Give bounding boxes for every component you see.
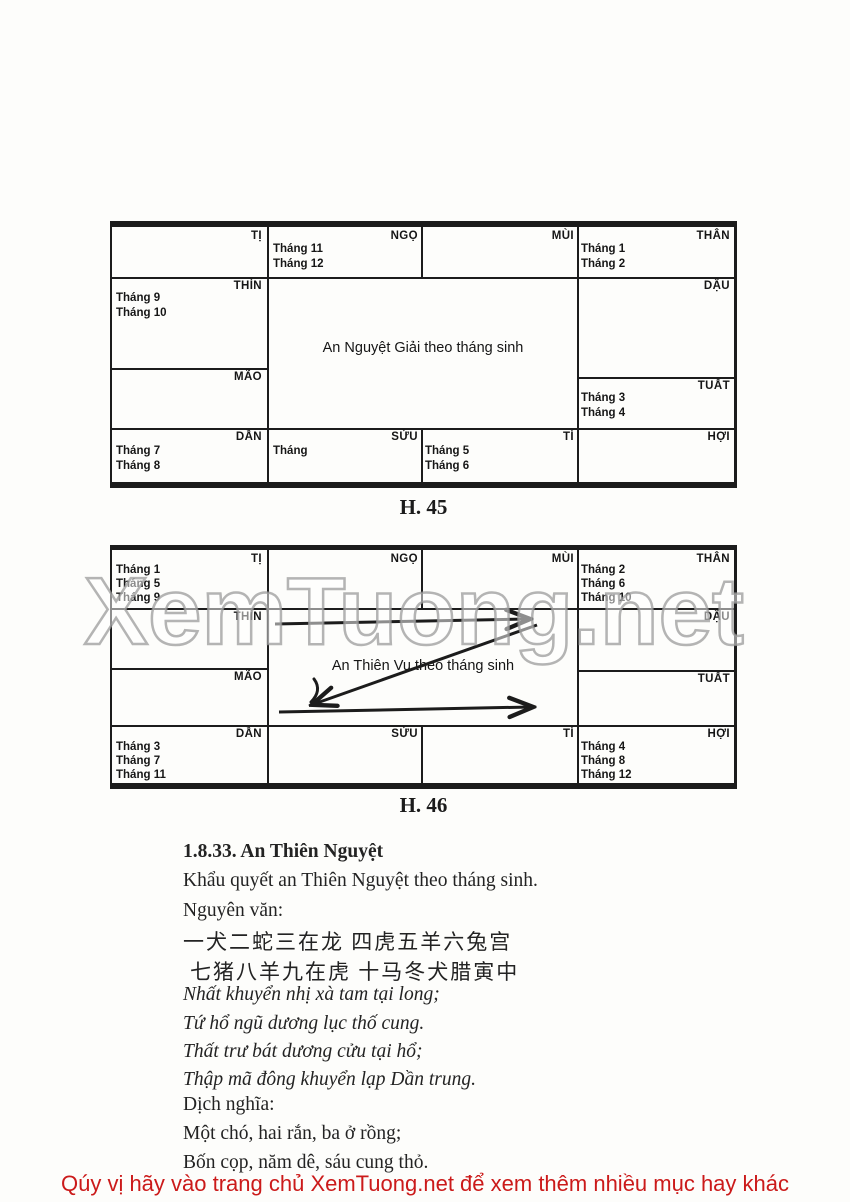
month-entry: Tháng 6	[581, 577, 631, 591]
h45-palace-label-than: THÂN	[580, 230, 730, 242]
month-entry: Tháng 4	[581, 740, 631, 754]
h46-palace-label-ty: TÍ	[424, 728, 574, 740]
h45-palace-label-mao: MÃO	[112, 371, 262, 383]
section-heading: 1.8.33. An Thiên Nguyệt	[183, 841, 383, 863]
h46-hoi-months: Tháng 4 Tháng 8 Tháng 12	[581, 740, 631, 782]
h45-tuat-months: Tháng 3 Tháng 4	[581, 391, 625, 421]
h45-palace-label-hoi: HỢI	[580, 431, 730, 443]
grid-line	[421, 550, 423, 608]
h45-palace-label-suu: SỬU	[270, 431, 418, 443]
chinese-verse-line: 一犬二蛇三在龙 四虎五羊六兔宫	[183, 926, 512, 956]
h46-palace-label-thin: THÌN	[112, 611, 262, 623]
month-entry: Tháng 3	[116, 740, 166, 754]
month-entry: Tháng 4	[581, 406, 625, 421]
h46-palace-label-mao: MÃO	[112, 671, 262, 683]
figure-h45-caption: H. 45	[110, 495, 737, 520]
h46-palace-label-ngo: NGỌ	[270, 553, 418, 565]
figure-h46-caption: H. 46	[110, 793, 737, 818]
figure-h46-palace-chart: TỊ NGỌ MÙI THÂN THÌN DẬU MÃO TUẤT DẦN SỬ…	[110, 545, 737, 789]
month-entry: Tháng 10	[116, 306, 166, 321]
h45-than-months: Tháng 1 Tháng 2	[581, 242, 625, 272]
h45-palace-label-dan: DẦN	[112, 431, 262, 443]
month-entry: Tháng 3	[581, 391, 625, 406]
h46-palace-label-hoi: HỢI	[580, 728, 730, 740]
month-entry: Tháng 8	[116, 459, 160, 474]
month-entry: Tháng 2	[581, 257, 625, 272]
month-entry: Tháng	[273, 444, 308, 459]
grid-line	[112, 277, 734, 279]
section-intro: Khẩu quyết an Thiên Nguyệt theo tháng si…	[183, 870, 538, 892]
h46-dan-months: Tháng 3 Tháng 7 Tháng 11	[116, 740, 166, 782]
dich-nghia-label: Dịch nghĩa:	[183, 1094, 275, 1116]
month-entry: Tháng 6	[425, 459, 469, 474]
h45-palace-label-ngo: NGỌ	[270, 230, 418, 242]
month-entry: Tháng 5	[425, 444, 469, 459]
scanned-book-page: { "ink_color": "#1c1c1c", "watermark": {…	[0, 0, 850, 1202]
h46-ti-months: Tháng 1 Tháng 5 Tháng 9	[116, 563, 160, 605]
grid-line	[112, 668, 269, 670]
month-entry: Tháng 7	[116, 754, 166, 768]
figure-h45-palace-chart: TỊ NGỌ MÙI THÂN THÌN DẬU MÃO TUẤT DẦN SỬ…	[110, 221, 737, 488]
grid-line	[421, 428, 423, 482]
han-viet-verse-line: Nhất khuyển nhị xà tam tại long;	[183, 984, 440, 1006]
month-entry: Tháng 8	[581, 754, 631, 768]
month-entry: Tháng 11	[116, 768, 166, 782]
h45-thin-months: Tháng 9 Tháng 10	[116, 291, 166, 321]
month-entry: Tháng 1	[116, 563, 160, 577]
month-entry: Tháng 1	[581, 242, 625, 257]
h45-ty-months: Tháng 5 Tháng 6	[425, 444, 469, 474]
chinese-verse-line: 七猪八羊九在虎 十马冬犬腊寅中	[190, 956, 519, 986]
h46-than-months: Tháng 2 Tháng 6 Tháng 10	[581, 563, 631, 605]
h46-palace-label-mui: MÙI	[424, 553, 574, 565]
month-entry: Tháng 11	[273, 242, 323, 257]
h45-palace-label-mui: MÙI	[424, 230, 574, 242]
han-viet-verse-line: Tứ hổ ngũ dương lục thố cung.	[183, 1013, 424, 1035]
grid-line	[112, 428, 734, 430]
month-entry: Tháng 9	[116, 291, 166, 306]
h46-center-title: An Thiên Vu theo tháng sinh	[267, 658, 579, 674]
month-entry: Tháng 2	[581, 563, 631, 577]
grid-line	[577, 377, 734, 379]
han-viet-verse-line: Thất trư bát dương cửu tại hổ;	[183, 1041, 422, 1063]
site-footer-banner: Qúy vị hãy vào trang chủ XemTuong.net để…	[0, 1171, 850, 1197]
grid-line	[112, 368, 269, 370]
h46-palace-label-dan: DẦN	[112, 728, 262, 740]
month-entry: Tháng 10	[581, 591, 631, 605]
month-entry: Tháng 5	[116, 577, 160, 591]
month-entry: Tháng 7	[116, 444, 160, 459]
grid-line	[112, 725, 734, 727]
h45-dan-months: Tháng 7 Tháng 8	[116, 444, 160, 474]
month-entry: Tháng 9	[116, 591, 160, 605]
h46-palace-label-tuat: TUẤT	[580, 673, 730, 685]
h45-center-title: An Nguyệt Giải theo tháng sinh	[267, 340, 579, 356]
grid-line	[421, 227, 423, 277]
grid-line	[577, 670, 734, 672]
han-viet-verse-line: Thập mã đông khuyển lạp Dần trung.	[183, 1069, 476, 1091]
month-entry: Tháng 12	[273, 257, 323, 272]
h46-palace-label-dau: DẬU	[580, 611, 730, 623]
h45-suu-months: Tháng	[273, 444, 308, 459]
dich-nghia-line: Một chó, hai rắn, ba ở rồng;	[183, 1123, 401, 1145]
month-entry: Tháng 12	[581, 768, 631, 782]
h46-palace-label-suu: SỬU	[270, 728, 418, 740]
nguyen-van-label: Nguyên văn:	[183, 900, 283, 922]
h45-palace-label-dau: DẬU	[580, 280, 730, 292]
grid-line	[112, 608, 734, 610]
grid-line	[421, 725, 423, 783]
h45-palace-label-ty: TÍ	[424, 431, 574, 443]
h45-ngo-months: Tháng 11 Tháng 12	[273, 242, 323, 272]
h45-palace-label-ti: TỊ	[112, 230, 262, 242]
